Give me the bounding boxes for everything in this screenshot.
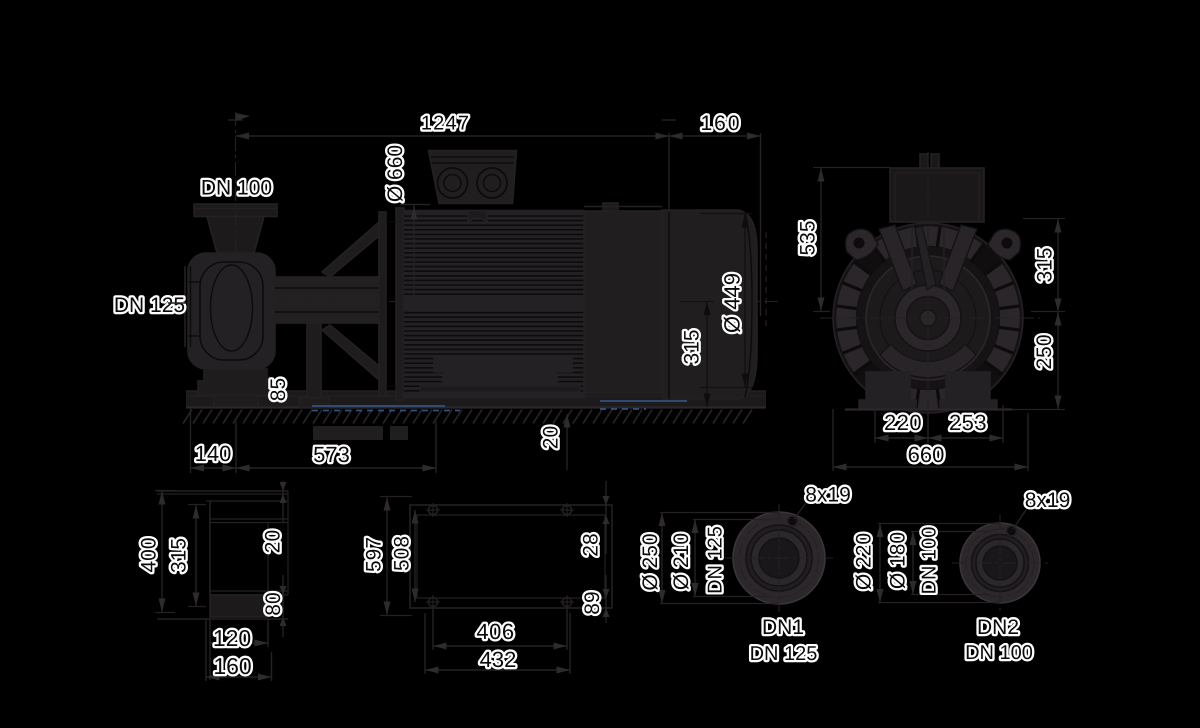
svg-text:315: 315	[1034, 247, 1057, 282]
svg-text:20: 20	[262, 530, 285, 553]
svg-text:8x19: 8x19	[805, 484, 851, 507]
svg-text:DN 125: DN 125	[114, 294, 185, 317]
svg-text:28: 28	[580, 533, 603, 556]
svg-text:597: 597	[363, 537, 386, 572]
svg-text:253: 253	[949, 410, 987, 435]
svg-text:Ø 660: Ø 660	[384, 145, 407, 202]
svg-text:85: 85	[267, 378, 290, 401]
svg-text:220: 220	[884, 410, 922, 435]
svg-text:573: 573	[313, 442, 350, 467]
svg-text:508: 508	[391, 536, 414, 571]
svg-text:DN1: DN1	[762, 616, 804, 639]
svg-text:432: 432	[480, 647, 517, 672]
svg-text:20: 20	[540, 426, 563, 449]
svg-text:660: 660	[908, 442, 945, 467]
svg-text:315: 315	[681, 329, 704, 364]
svg-text:Ø 449: Ø 449	[720, 273, 745, 333]
svg-text:1247: 1247	[421, 113, 470, 135]
svg-text:8x19: 8x19	[1025, 489, 1071, 512]
svg-text:Ø 210: Ø 210	[670, 533, 693, 590]
svg-text:Ø 180: Ø 180	[887, 532, 910, 589]
svg-text:DN 100: DN 100	[919, 527, 941, 595]
svg-text:DN 125: DN 125	[750, 643, 818, 665]
svg-text:160: 160	[700, 112, 741, 135]
svg-text:120: 120	[213, 625, 251, 651]
svg-text:89: 89	[581, 591, 604, 614]
svg-text:315: 315	[168, 538, 191, 573]
svg-text:DN2: DN2	[977, 616, 1019, 639]
svg-text:406: 406	[476, 619, 514, 644]
svg-text:Ø 250: Ø 250	[639, 533, 662, 590]
svg-text:160: 160	[213, 653, 251, 679]
svg-text:DN 100: DN 100	[965, 642, 1033, 664]
svg-text:DN 125: DN 125	[705, 526, 727, 594]
svg-text:DN 100: DN 100	[201, 177, 272, 200]
svg-text:250: 250	[1033, 334, 1056, 369]
svg-text:400: 400	[138, 537, 161, 572]
svg-text:80: 80	[262, 592, 285, 615]
svg-text:535: 535	[797, 220, 820, 255]
svg-text:Ø 220: Ø 220	[853, 533, 876, 590]
svg-text:140: 140	[195, 441, 232, 466]
